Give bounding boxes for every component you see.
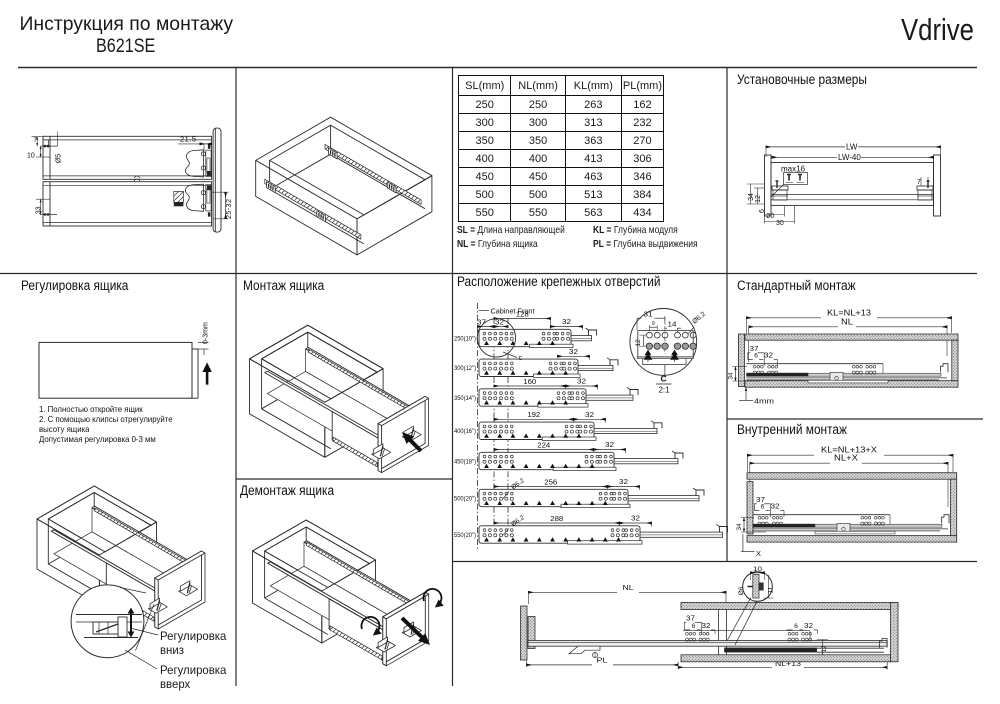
svg-text:32: 32: [585, 412, 594, 419]
svg-text:6: 6: [692, 623, 696, 630]
svg-text:500(20"): 500(20"): [454, 495, 476, 502]
svg-text:NL: NL: [623, 583, 634, 592]
svg-text:6: 6: [759, 209, 766, 213]
svg-text:c: c: [519, 353, 523, 362]
svg-text:160: 160: [523, 379, 536, 386]
svg-text:32: 32: [577, 379, 586, 386]
svg-text:32: 32: [619, 479, 628, 486]
svg-text:256: 256: [544, 479, 557, 486]
svg-text:32: 32: [702, 623, 711, 630]
svg-text:9: 9: [652, 321, 655, 327]
svg-text:7: 7: [917, 179, 921, 186]
svg-text:128: 128: [516, 311, 529, 318]
svg-text:KL=NL+13: KL=NL+13: [827, 308, 872, 317]
svg-text:32: 32: [562, 319, 571, 326]
svg-text:NL+X: NL+X: [834, 454, 859, 463]
svg-text:6: 6: [794, 623, 798, 630]
svg-text:LW-40: LW-40: [838, 153, 861, 162]
svg-text:max16: max16: [781, 165, 806, 174]
svg-text:X: X: [756, 549, 761, 558]
svg-text:4mm: 4mm: [754, 397, 774, 406]
svg-text:6: 6: [754, 353, 758, 360]
svg-text:25-32: 25-32: [226, 199, 233, 219]
svg-text:250(10"): 250(10"): [454, 335, 476, 342]
svg-text:21.5: 21.5: [180, 135, 196, 144]
svg-text:12: 12: [755, 195, 762, 203]
svg-text:32: 32: [764, 353, 773, 360]
svg-text:12: 12: [821, 645, 828, 653]
svg-text:32: 32: [804, 623, 813, 630]
svg-text:37: 37: [686, 615, 695, 622]
svg-text:14: 14: [668, 322, 677, 329]
svg-text:20: 20: [767, 213, 775, 220]
svg-text:32: 32: [569, 349, 578, 356]
svg-text:288: 288: [550, 516, 563, 523]
svg-text:350(14"): 350(14"): [454, 395, 476, 402]
svg-text:0-3mm: 0-3mm: [203, 322, 210, 344]
svg-text:12: 12: [635, 339, 642, 347]
svg-text:LW: LW: [846, 143, 858, 152]
svg-text:Ø5: Ø5: [56, 154, 63, 163]
svg-text:PL: PL: [597, 656, 608, 665]
svg-text:34: 34: [736, 523, 743, 531]
svg-text:224: 224: [537, 442, 550, 449]
svg-text:32: 32: [771, 504, 780, 511]
svg-text:32: 32: [605, 442, 614, 449]
svg-text:34: 34: [748, 193, 755, 201]
svg-text:550(20"): 550(20"): [454, 532, 476, 539]
svg-text:31: 31: [644, 312, 653, 319]
svg-text:Ø6.2: Ø6.2: [691, 311, 707, 326]
svg-text:10: 10: [753, 566, 762, 573]
svg-text:32: 32: [631, 516, 640, 523]
svg-text:Ø6: Ø6: [738, 586, 745, 595]
svg-text:33: 33: [36, 206, 43, 214]
svg-text:400(16"): 400(16"): [454, 428, 476, 435]
svg-text:32: 32: [495, 320, 504, 327]
svg-text:C: C: [661, 374, 667, 384]
svg-text:192: 192: [527, 412, 540, 419]
svg-text:6: 6: [761, 504, 765, 511]
svg-text:10: 10: [27, 153, 35, 160]
svg-text:NL: NL: [841, 317, 854, 326]
svg-text:300(12"): 300(12"): [454, 365, 476, 372]
svg-text:450(18"): 450(18"): [454, 458, 476, 465]
svg-text:30: 30: [776, 220, 784, 227]
svg-text:2:1: 2:1: [658, 386, 670, 395]
svg-text:34: 34: [728, 372, 735, 380]
